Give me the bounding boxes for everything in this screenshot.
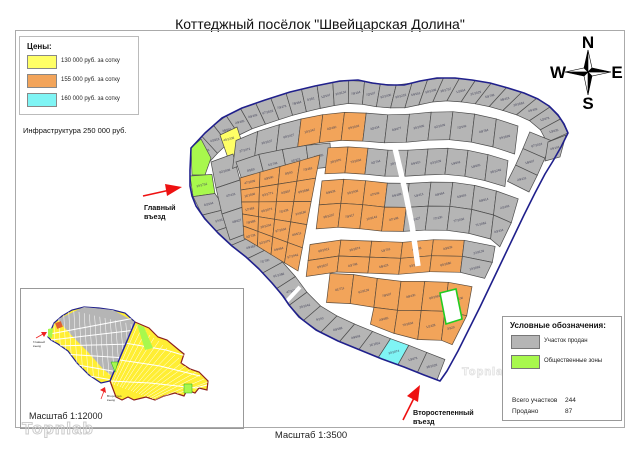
svg-text:W: W: [550, 63, 567, 82]
svg-text:S: S: [582, 94, 593, 113]
svg-text:N: N: [582, 33, 594, 52]
svg-text:E: E: [611, 63, 622, 82]
